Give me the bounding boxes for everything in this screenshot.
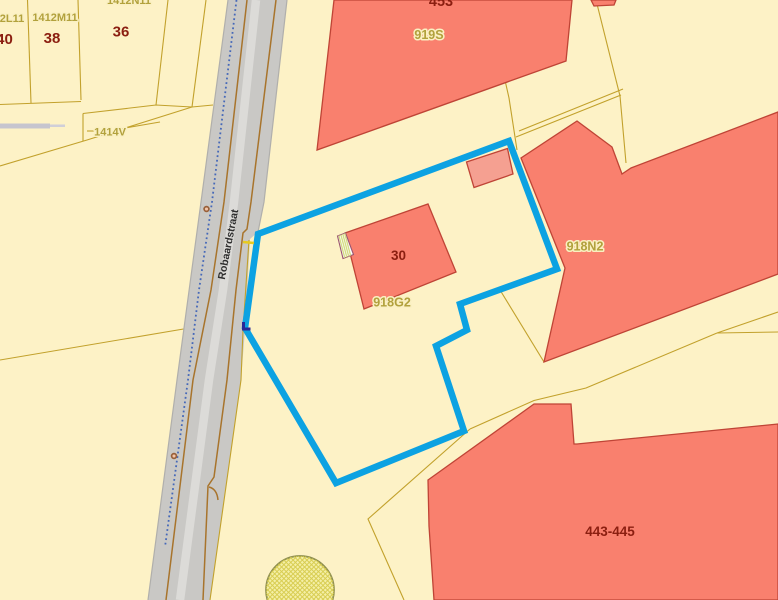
svg-text:918G2: 918G2 [373,296,411,310]
svg-text:36: 36 [113,24,130,41]
svg-text:1412N11: 1412N11 [107,0,151,7]
svg-text:38: 38 [44,30,61,47]
svg-text:1412M11: 1412M11 [32,12,77,24]
svg-text:918N2: 918N2 [567,240,604,254]
svg-text:2L11: 2L11 [0,13,24,25]
svg-text:919S: 919S [414,28,443,42]
svg-text:30: 30 [391,248,406,263]
svg-text:443-445: 443-445 [585,524,635,539]
svg-text:1414V: 1414V [94,127,126,139]
svg-text:40: 40 [0,31,13,48]
svg-text:453: 453 [429,0,453,10]
